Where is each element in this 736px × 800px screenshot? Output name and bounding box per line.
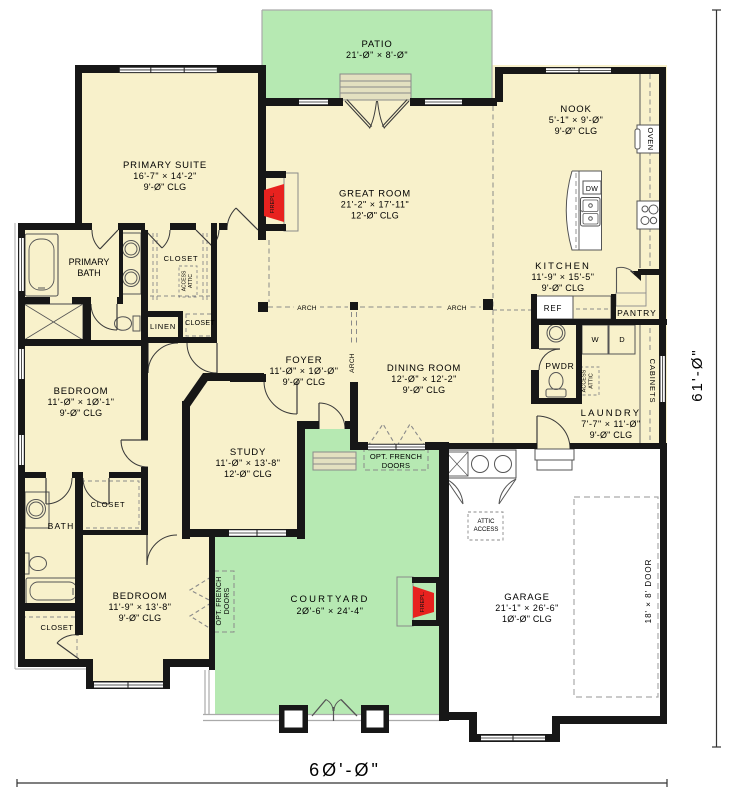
svg-text:COURTYARD: COURTYARD — [290, 594, 369, 605]
svg-text:11'-Ø" × 1Ø'-1": 11'-Ø" × 1Ø'-1" — [48, 397, 115, 407]
svg-text:9'-Ø" CLG: 9'-Ø" CLG — [283, 377, 326, 387]
svg-text:OVEN: OVEN — [646, 127, 655, 150]
svg-text:ATTIC: ATTIC — [188, 274, 194, 288]
svg-text:21'-1" × 26'-6": 21'-1" × 26'-6" — [495, 603, 559, 613]
svg-text:LINEN: LINEN — [150, 322, 176, 331]
svg-text:W: W — [591, 335, 599, 344]
svg-text:OPT. FRENCH: OPT. FRENCH — [370, 452, 422, 461]
svg-text:12'-Ø" × 12'-2": 12'-Ø" × 12'-2" — [391, 374, 457, 384]
svg-text:FOYER: FOYER — [286, 355, 323, 366]
svg-text:LAUNDRY: LAUNDRY — [581, 408, 642, 419]
svg-text:2Ø'-6" × 24'-4": 2Ø'-6" × 24'-4" — [296, 606, 363, 616]
svg-text:6Ø'-Ø": 6Ø'-Ø" — [309, 760, 381, 780]
svg-text:ATTIC: ATTIC — [589, 373, 595, 389]
svg-text:BEDROOM: BEDROOM — [113, 591, 168, 602]
svg-text:11'-9" × 13'-8": 11'-9" × 13'-8" — [109, 602, 172, 612]
svg-text:REF: REF — [544, 304, 562, 313]
svg-text:OPT. FRENCH: OPT. FRENCH — [216, 577, 223, 626]
svg-text:9'-Ø" CLG: 9'-Ø" CLG — [403, 385, 446, 395]
svg-text:PANTRY: PANTRY — [617, 308, 657, 318]
svg-text:PATIO: PATIO — [361, 39, 392, 50]
svg-text:ARCH: ARCH — [297, 305, 317, 312]
svg-text:9'-Ø" CLG: 9'-Ø" CLG — [144, 182, 187, 192]
svg-text:ACCESS: ACCESS — [474, 527, 499, 533]
svg-text:16'-7" × 14'-2": 16'-7" × 14'-2" — [133, 171, 197, 181]
svg-text:PRIMARY: PRIMARY — [69, 257, 110, 267]
svg-text:5'-1" × 9'-Ø": 5'-1" × 9'-Ø" — [549, 115, 604, 125]
svg-text:DOORS: DOORS — [382, 461, 411, 470]
svg-text:9'-Ø" CLG: 9'-Ø" CLG — [119, 613, 162, 623]
svg-text:12'-Ø" CLG: 12'-Ø" CLG — [224, 469, 272, 479]
svg-text:DW: DW — [586, 186, 598, 193]
svg-text:D: D — [619, 335, 625, 344]
svg-text:CLOSET: CLOSET — [185, 320, 215, 327]
svg-text:GARAGE: GARAGE — [504, 592, 549, 603]
svg-text:BEDROOM: BEDROOM — [54, 386, 109, 397]
svg-text:12'-Ø" CLG: 12'-Ø" CLG — [351, 211, 399, 221]
svg-text:21'-2" × 17'-11": 21'-2" × 17'-11" — [341, 200, 409, 210]
svg-text:CLOSET: CLOSET — [91, 500, 126, 509]
svg-text:7'-7" × 11'-Ø": 7'-7" × 11'-Ø" — [581, 419, 640, 429]
svg-text:11'-9" × 15'-5": 11'-9" × 15'-5" — [532, 272, 595, 282]
svg-text:21'-Ø" × 8'-Ø": 21'-Ø" × 8'-Ø" — [346, 50, 408, 60]
svg-text:BATH: BATH — [48, 521, 75, 531]
svg-text:18' × 8' DOOR: 18' × 8' DOOR — [644, 559, 653, 624]
svg-text:DOORS: DOORS — [224, 588, 231, 615]
svg-text:9'-Ø" CLG: 9'-Ø" CLG — [60, 408, 103, 418]
svg-text:NOOK: NOOK — [560, 104, 591, 115]
svg-text:FIREPL.: FIREPL. — [420, 591, 426, 612]
svg-text:CLOSET: CLOSET — [164, 254, 199, 263]
svg-text:61'-Ø": 61'-Ø" — [689, 348, 706, 402]
svg-text:ATTIC: ATTIC — [478, 519, 496, 525]
svg-text:9'-Ø" CLG: 9'-Ø" CLG — [590, 430, 633, 440]
svg-text:FIREPL.: FIREPL. — [270, 192, 276, 213]
svg-text:GREAT ROOM: GREAT ROOM — [339, 189, 411, 200]
svg-text:STUDY: STUDY — [230, 447, 266, 458]
svg-text:CABINETS: CABINETS — [648, 359, 657, 404]
svg-text:ACCESS: ACCESS — [582, 369, 588, 392]
svg-text:PRIMARY SUITE: PRIMARY SUITE — [123, 160, 207, 171]
svg-text:PWDR: PWDR — [545, 361, 574, 371]
svg-text:CLOSET: CLOSET — [40, 623, 73, 632]
svg-text:ARCH: ARCH — [447, 305, 467, 312]
svg-text:9'-Ø" CLG: 9'-Ø" CLG — [542, 283, 585, 293]
svg-text:11'-Ø" × 1Ø'-Ø": 11'-Ø" × 1Ø'-Ø" — [270, 366, 339, 376]
svg-text:DINING ROOM: DINING ROOM — [387, 363, 461, 374]
svg-text:ACCESS: ACCESS — [182, 270, 188, 291]
svg-text:KITCHEN: KITCHEN — [535, 261, 591, 272]
svg-text:1Ø'-Ø" CLG: 1Ø'-Ø" CLG — [502, 614, 552, 624]
svg-text:9'-Ø" CLG: 9'-Ø" CLG — [555, 126, 598, 136]
svg-text:11'-Ø" × 13'-8": 11'-Ø" × 13'-8" — [216, 458, 281, 468]
svg-text:BATH: BATH — [77, 268, 100, 278]
svg-text:ARCH: ARCH — [349, 353, 356, 373]
